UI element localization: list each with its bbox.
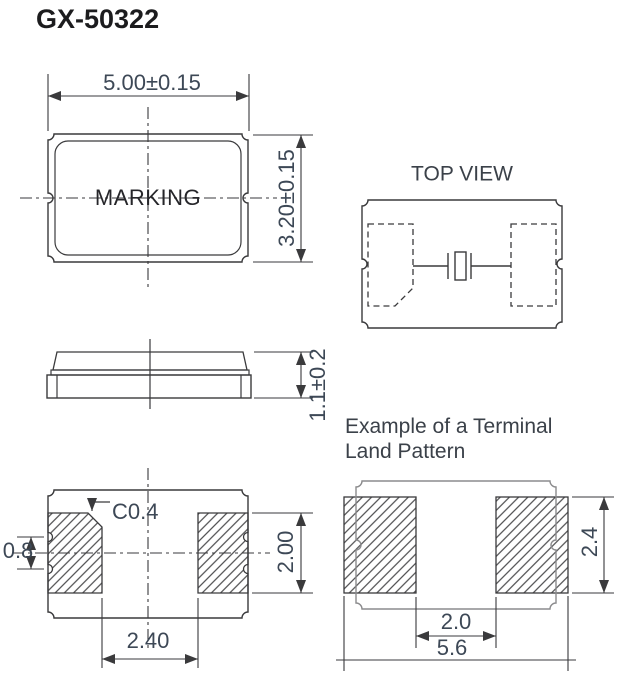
- page-title: GX-50322: [36, 6, 159, 33]
- marking-text: MARKING: [95, 187, 201, 209]
- land-pad-left: [344, 497, 416, 593]
- crystal-symbol: [413, 252, 511, 280]
- front-view-drawing: [20, 74, 313, 291]
- side-view-drawing: [47, 339, 313, 409]
- top-view-hidden-terminal-left: [368, 224, 413, 306]
- pad-gap-dim-label: 2.40: [127, 630, 170, 652]
- side-thickness-dim-label: 1.1±0.2: [307, 348, 329, 421]
- land-overall-width-dim-label: 5.6: [437, 637, 468, 659]
- land-pattern-title-line1: Example of a Terminal: [345, 416, 552, 437]
- land-pattern-title-line2: Land Pattern: [345, 441, 465, 462]
- land-gap-dim-label: 2.0: [441, 611, 472, 633]
- datasheet-page: GX-50322 5.00±0.15 3.20±0.15 MARKING TOP…: [0, 0, 618, 673]
- castellation-dim-label: 0.8: [3, 540, 34, 562]
- front-width-dim-label: 5.00±0.15: [103, 72, 201, 94]
- chamfer-label: C0.4: [112, 501, 158, 523]
- top-view-drawing: [362, 200, 562, 328]
- land-pad-right: [496, 497, 568, 593]
- land-pattern-drawing: [336, 481, 614, 671]
- top-view-package-outline: [362, 200, 562, 328]
- top-view-hidden-terminal-right: [511, 224, 556, 306]
- land-height-dim-label: 2.4: [579, 527, 601, 558]
- side-view-base: [47, 375, 251, 398]
- drawing-linework: [0, 0, 618, 673]
- front-height-dim-label: 3.20±0.15: [276, 149, 298, 247]
- top-view-label: TOP VIEW: [411, 164, 513, 185]
- pad-height-dim-label: 2.00: [275, 531, 297, 574]
- chamfer-leader-line: [92, 502, 110, 511]
